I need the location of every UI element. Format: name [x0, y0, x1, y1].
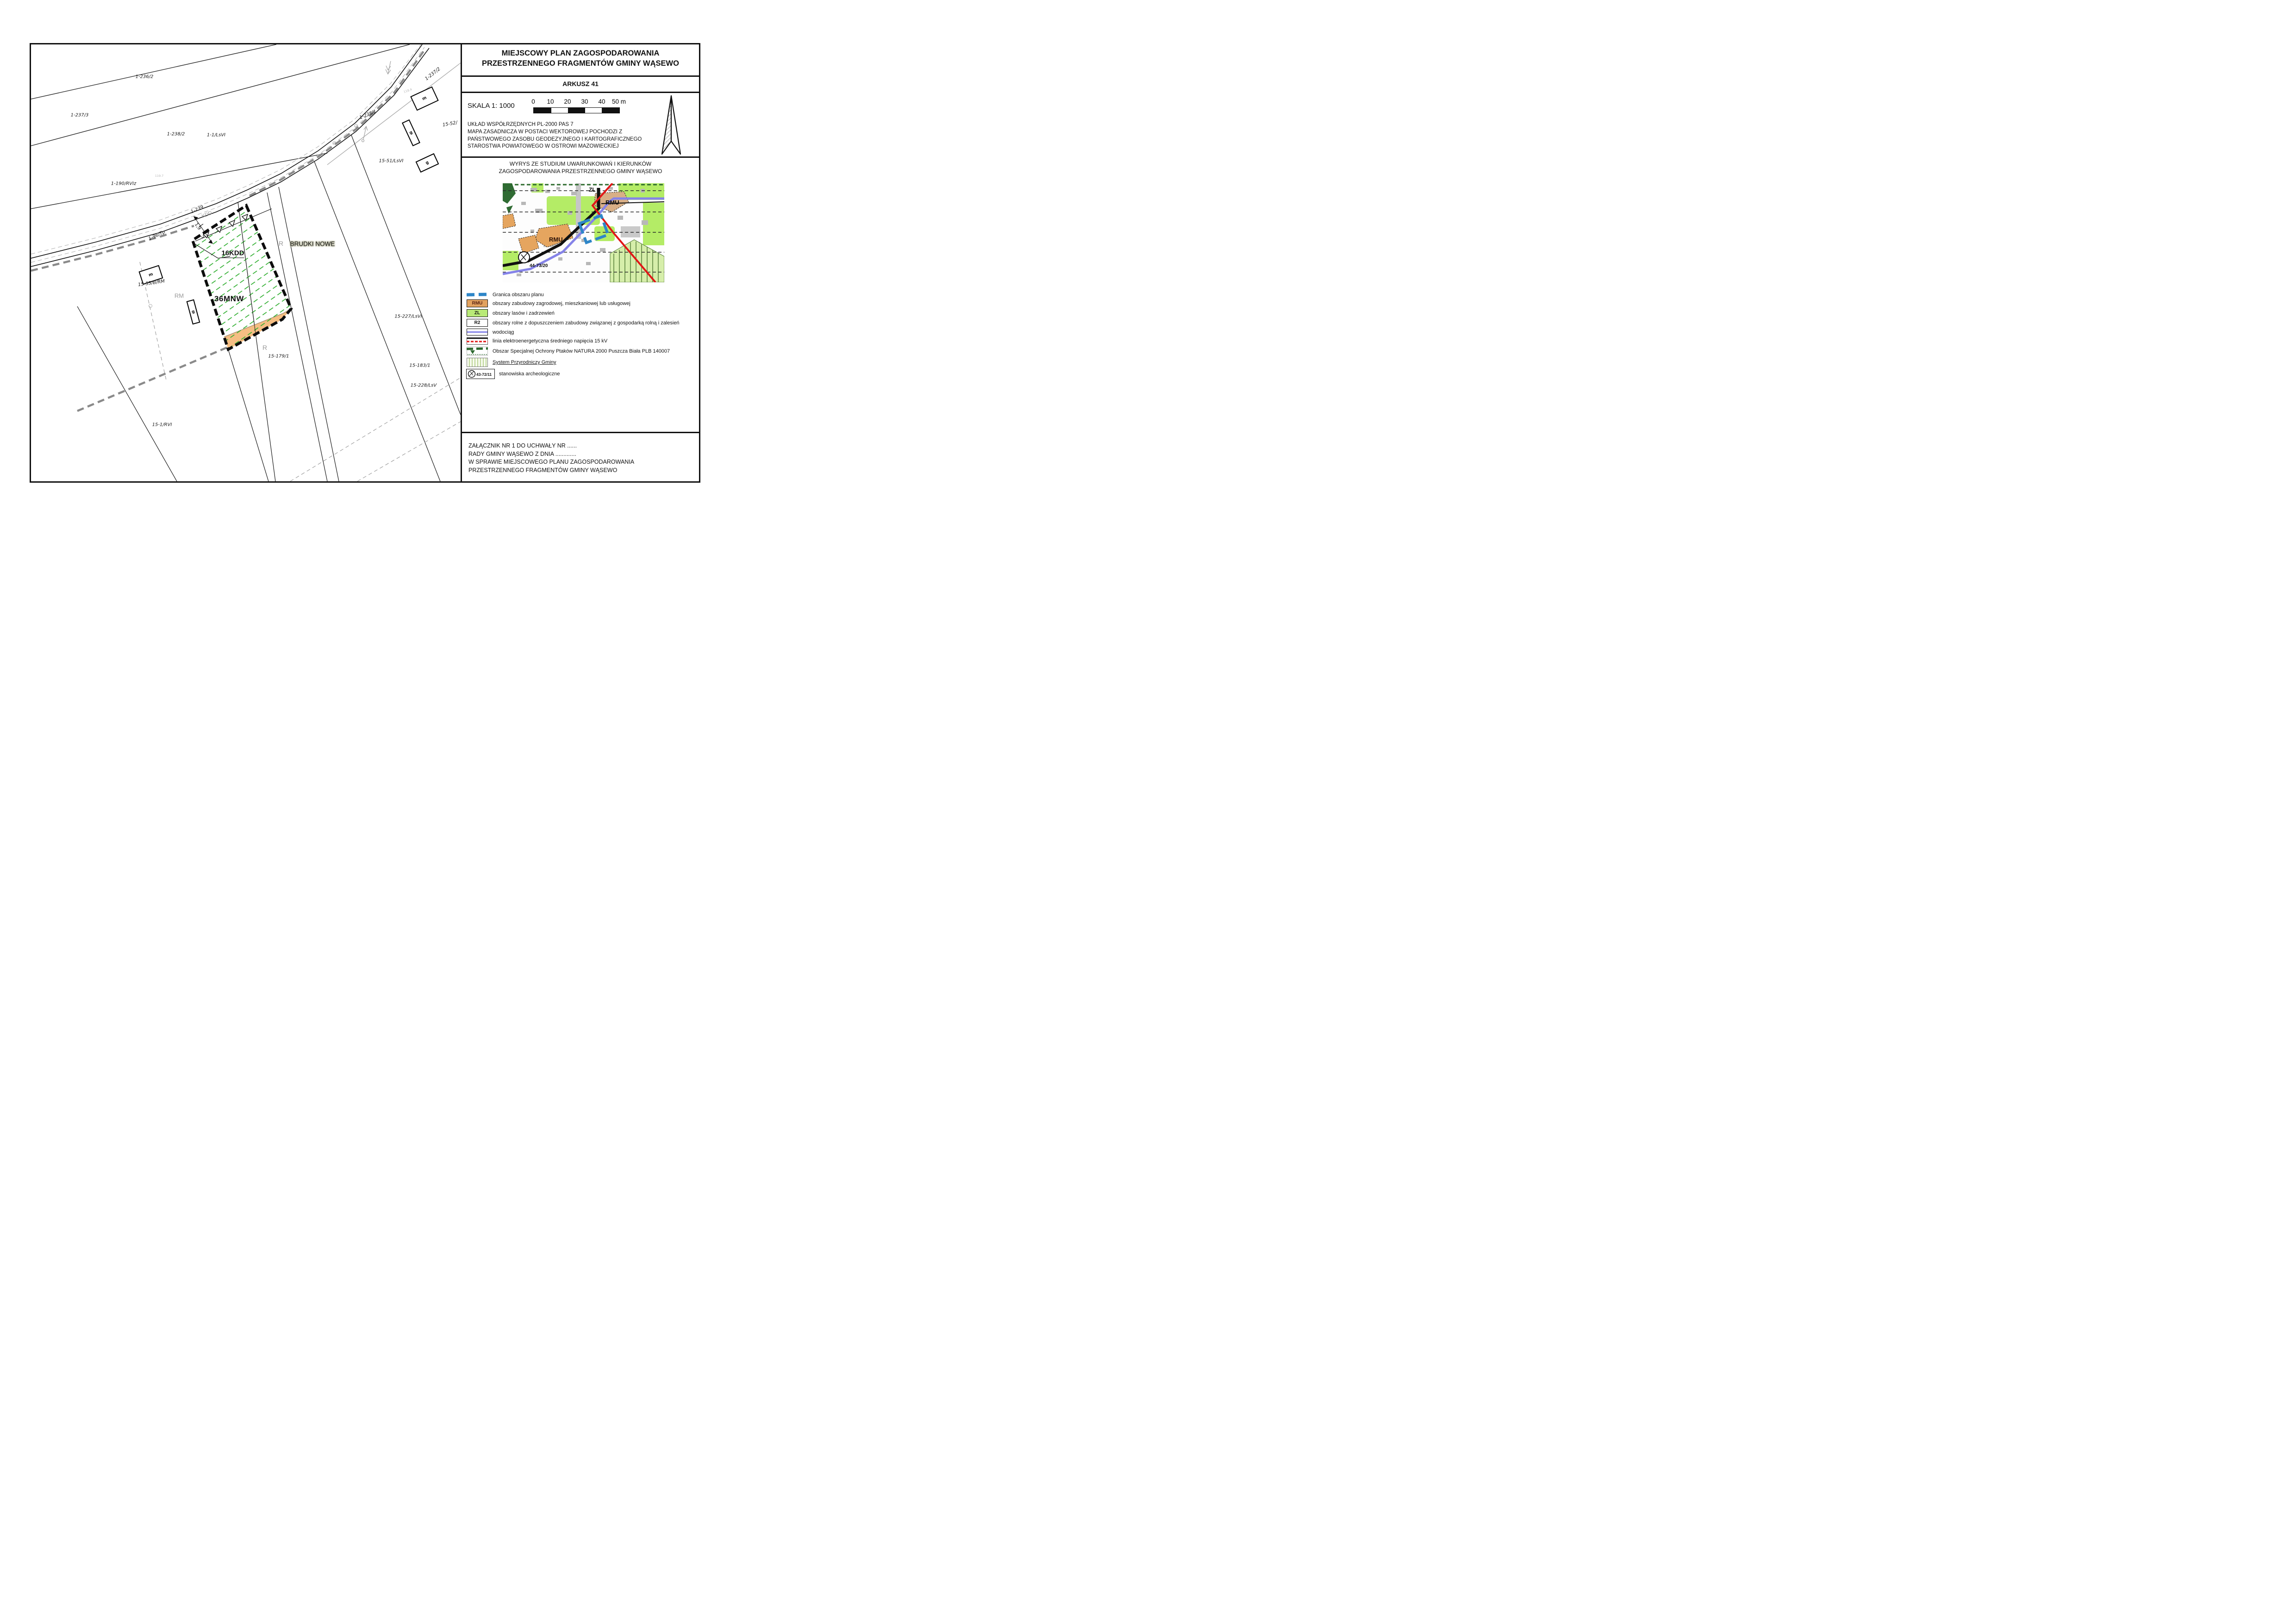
parcel-label: 1-238/2 [167, 132, 185, 137]
source-line: MAPA ZASADNICZA W POSTACI WEKTOROWEJ POC… [468, 129, 642, 136]
legend-label: obszary zabudowy zagrodowej, mieszkaniow… [493, 301, 630, 306]
footer-note: ZAŁĄCZNIK NR 1 DO UCHWAŁY NR ...... RADY… [468, 442, 634, 474]
scale-tick: 50 m [612, 98, 626, 105]
zl-swatch: ZL [467, 309, 488, 317]
arch-code: 43-72/11 [476, 372, 492, 377]
natura-hatch [188, 202, 296, 352]
footer-line: RADY GMINY WĄSEWO Z DNIA ............. [468, 450, 634, 459]
gray-dashed-lines [140, 262, 461, 481]
power-line-swatch [466, 337, 488, 345]
legend-label: Obszar Specjalnej Ochrony Ptaków NATURA … [493, 348, 670, 354]
legend-row-power: linia elektroenergetyczna średniego napi… [466, 337, 699, 345]
r2-swatch: R2 [467, 319, 488, 327]
inset-arch-site [518, 252, 530, 263]
parcel-label: 1-190/RVIz [111, 181, 136, 187]
sheet-title: MIEJSCOWY PLAN ZAGOSPODAROWANIA PRZESTRZ… [461, 48, 700, 68]
survey-point [149, 305, 152, 308]
legend-row-granica: Granica obszaru planu [466, 292, 699, 298]
inset-label-zl: ZL [589, 187, 596, 193]
parcel-label: 15-179/1 [268, 354, 289, 359]
zone-label-16kdd: 16KDD [221, 249, 244, 258]
study-inset-map: ZL RMU RMU 44-73/20 [503, 183, 664, 282]
source-line: PAŃSTWOWEGO ZASOBU GEODEZYJNEGO I KARTOG… [468, 136, 642, 143]
parcel-label: 15-183/1 [409, 363, 430, 368]
legend-label: stanowiska archeologiczne [499, 371, 560, 377]
landuse-label-r: R [279, 240, 283, 247]
source-line: UKŁAD WSPÓŁRZĘDNYCH PL-2000 PAS 7 [468, 121, 642, 129]
source-line: STAROSTWA POWIATOWEGO W OSTROWI MAZOWIEC… [468, 143, 642, 150]
parcel-label: 15-228/LsV [411, 383, 437, 388]
legend-label: Granica obszaru planu [493, 292, 544, 298]
scale-tick: 30 [581, 98, 588, 105]
inset-label-rmu: RMU [549, 236, 563, 243]
scale-tick: 20 [564, 98, 571, 105]
rmu-swatch: RMU [467, 299, 488, 307]
map-canvas [31, 44, 461, 481]
parcel-label: 15-227/LsVI [394, 314, 422, 319]
legend-row-rmu: RMU obszary zabudowy zagrodowej, mieszka… [466, 299, 699, 307]
source-note: UKŁAD WSPÓŁRZĘDNYCH PL-2000 PAS 7 MAPA Z… [468, 121, 642, 150]
legend-label: wodociąg [493, 330, 514, 335]
inset-forest-dark [503, 183, 516, 204]
wyrys-line2: ZAGOSPODAROWANIA PRZESTRZENNEGO GMINY WĄ… [461, 168, 700, 175]
legend-label: System Przyrodniczy Gminy [493, 360, 556, 365]
legend-row-arch: 43-72/11 stanowiska archeologiczne [466, 369, 699, 379]
wyrys-title: WYRYS ZE STUDIUM UWARUNKOWAŃ I KIERUNKÓW… [461, 160, 700, 175]
legend-label: obszary lasów i zadrzewień [493, 311, 555, 316]
inset-label-rmu: RMU [605, 199, 619, 206]
legend: Granica obszaru planu RMU obszary zabudo… [466, 292, 699, 381]
landuse-label-rm: RM [175, 292, 184, 299]
parcel-lines [31, 44, 410, 209]
title-line1: MIEJSCOWY PLAN ZAGOSPODAROWANIA [461, 48, 700, 58]
legend-row-zl: ZL obszary lasów i zadrzewień [466, 309, 699, 317]
legend-row-system: System Przyrodniczy Gminy [466, 358, 699, 367]
landuse-label-r: R [262, 344, 267, 351]
building-label: m [148, 272, 154, 278]
building-label: g [191, 309, 195, 314]
inset-label-arch: 44-73/20 [530, 263, 548, 268]
title-line2: PRZESTRZENNEGO FRAGMENTÓW GMINY WĄSEWO [461, 58, 700, 68]
scale-label: SKALA 1: 1000 [468, 102, 515, 110]
inset-forest-dark [506, 205, 513, 214]
legend-row-r2: R2 obszary rolne z dopuszczeniem zabudow… [466, 319, 699, 327]
scale-tick: 0 [531, 98, 535, 105]
building-label: m [422, 95, 428, 101]
plan-sheet: m g m g g 1-236/2 1-237/3 1-238/2 1-1/Ls… [0, 0, 722, 510]
building-label: g [425, 160, 430, 166]
legend-label: linia elektroenergetyczna średniego napi… [493, 338, 607, 344]
scale-tick: 10 [547, 98, 554, 105]
footer-line: PRZESTRZENNEGO FRAGMENTÓW GMINY WĄSEWO [468, 466, 634, 475]
north-arrow-icon [658, 95, 684, 156]
building-label: g [409, 130, 413, 136]
wyrys-line1: WYRYS ZE STUDIUM UWARUNKOWAŃ I KIERUNKÓW [461, 160, 700, 168]
footer-line: W SPRAWIE MIEJSCOWEGO PLANU ZAGOSPODAROW… [468, 458, 634, 466]
place-label: BRUDKI NOWE [290, 241, 335, 248]
parcel-label: 1-237/3 [71, 113, 89, 118]
system-przyrodniczy-swatch [466, 358, 488, 367]
elevation-label: 119.7 [155, 174, 164, 178]
legend-label: obszary rolne z dopuszczeniem zabudowy z… [493, 320, 680, 326]
natura-swatch [466, 347, 488, 356]
parcel-label: 15-51/LsVI [379, 159, 404, 164]
wodociag-swatch [467, 329, 488, 336]
legend-row-wodociag: wodociąg [466, 329, 699, 336]
zone-label-36mnw: 36MNW [214, 294, 244, 304]
parcel-label: 1-1/LsVI [207, 133, 225, 138]
scale-tick: 40 [598, 98, 605, 105]
footer-line: ZAŁĄCZNIK NR 1 DO UCHWAŁY NR ...... [468, 442, 634, 450]
legend-row-natura: Obszar Specjalnej Ochrony Ptaków NATURA … [466, 347, 699, 356]
map-area: m g m g g 1-236/2 1-237/3 1-238/2 1-1/Ls… [31, 44, 461, 481]
sheet-number: ARKUSZ 41 [461, 80, 700, 87]
parcel-label: 1-236/2 [136, 75, 154, 80]
parcel-label: 15-1/RVI [152, 423, 172, 428]
arch-site-swatch: 43-72/11 [466, 369, 495, 379]
scale-bar: 0 10 20 30 40 50 m [533, 98, 640, 113]
plan-boundary-swatch [466, 292, 488, 298]
